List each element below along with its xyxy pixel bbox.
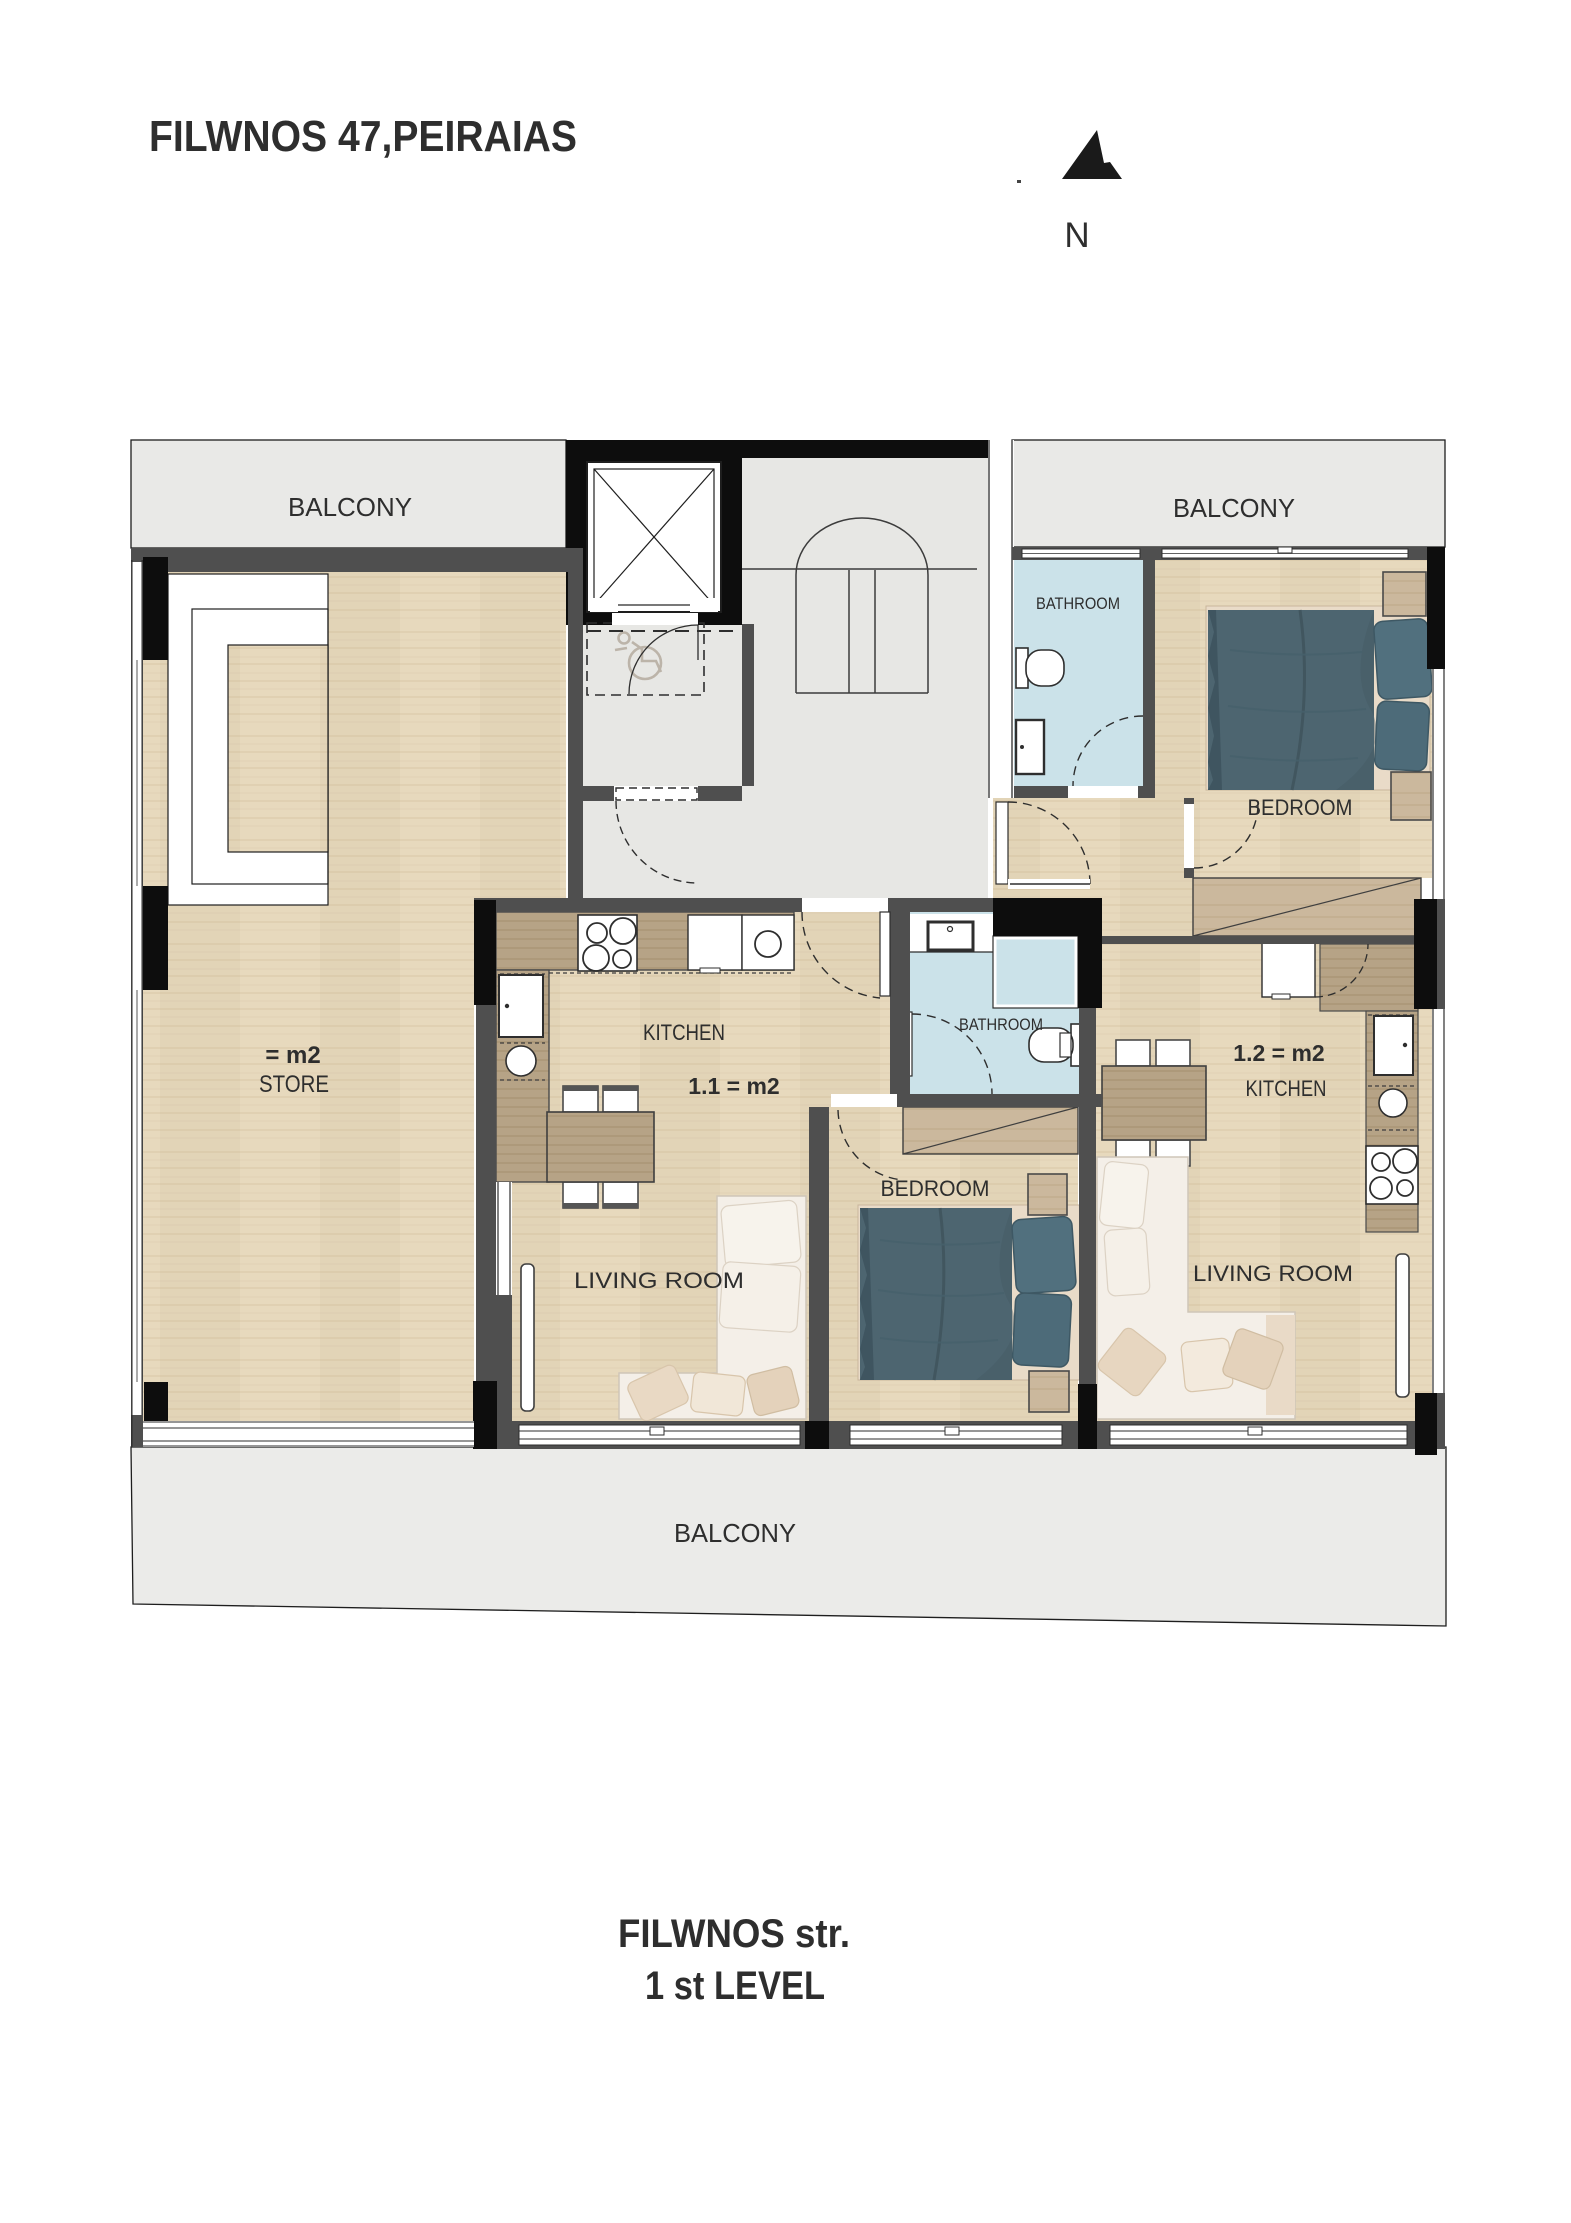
svg-text:LIVING ROOM: LIVING ROOM: [1193, 1261, 1353, 1286]
svg-text:KITCHEN: KITCHEN: [1246, 1076, 1327, 1101]
svg-text:BALCONY: BALCONY: [288, 492, 412, 522]
svg-text:LIVING ROOM: LIVING ROOM: [574, 1268, 744, 1293]
svg-text:KITCHEN: KITCHEN: [643, 1020, 725, 1045]
svg-text:= m2: = m2: [265, 1042, 320, 1069]
svg-text:FILWNOS str.: FILWNOS str.: [618, 1912, 850, 1956]
svg-text:1 st LEVEL: 1 st LEVEL: [645, 1964, 825, 2008]
svg-text:1.1 = m2: 1.1 = m2: [688, 1073, 779, 1099]
svg-text:BEDROOM: BEDROOM: [881, 1176, 990, 1201]
svg-text:STORE: STORE: [259, 1071, 329, 1098]
svg-text:N: N: [1064, 216, 1089, 255]
svg-text:BATHROOM: BATHROOM: [959, 1015, 1043, 1034]
svg-text:BALCONY: BALCONY: [1173, 493, 1295, 523]
svg-text:BALCONY: BALCONY: [674, 1518, 796, 1548]
svg-text:1.2 = m2: 1.2 = m2: [1233, 1040, 1324, 1066]
svg-text:FILWNOS 47,PEIRAIAS: FILWNOS 47,PEIRAIAS: [149, 112, 577, 161]
svg-text:BATHROOM: BATHROOM: [1036, 594, 1120, 613]
svg-text:BEDROOM: BEDROOM: [1248, 795, 1353, 820]
